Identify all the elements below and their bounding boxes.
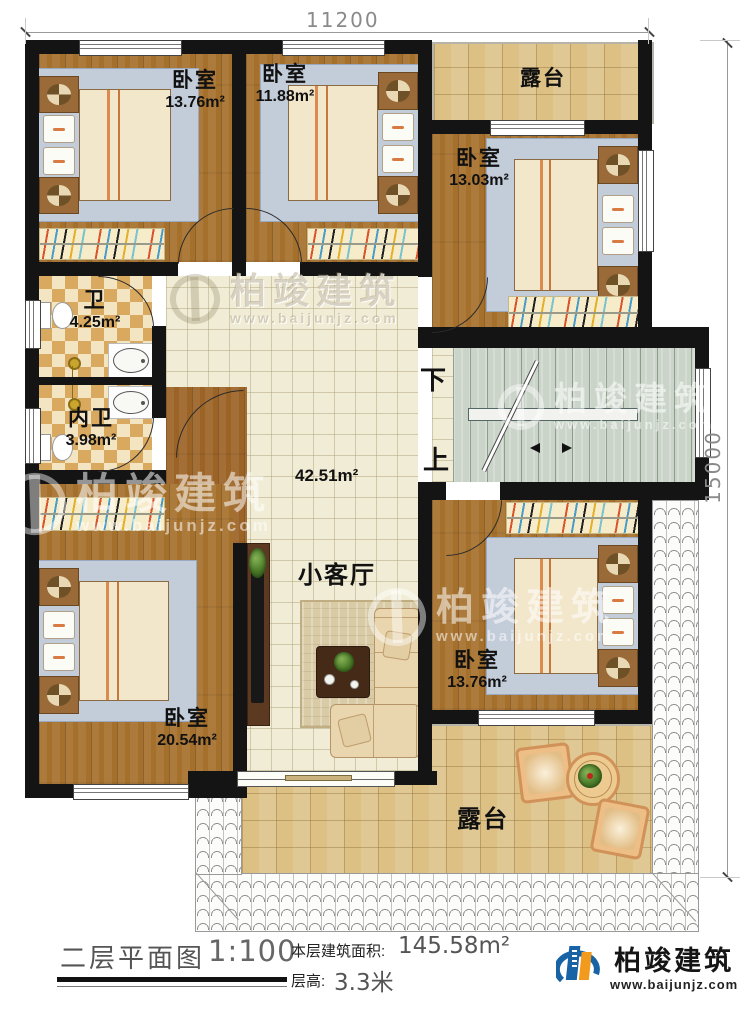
window (25, 300, 41, 349)
nightstand (39, 76, 79, 113)
wall-bedroom-r-right (638, 250, 652, 331)
dimension-height: 15000 (701, 430, 725, 504)
pillow (602, 195, 634, 223)
wall-bedroom-br-bottom (432, 710, 478, 724)
floor-plan: 下 上 (0, 0, 750, 1009)
wall-bath-right (152, 326, 166, 418)
wall-terrace-bedroom-r (432, 120, 490, 134)
nightstand (598, 649, 638, 687)
extension-line (700, 40, 740, 41)
company-name: 柏竣建筑 (614, 947, 734, 977)
floor-area-value: 145.58m² (398, 933, 510, 959)
wall-stairs-bottom (418, 482, 446, 500)
sliding-door (237, 771, 395, 787)
nightstand (378, 176, 418, 214)
floor-height-label: 层高: (291, 970, 325, 991)
roof-tiles-bottom (195, 873, 699, 932)
title-underline (57, 977, 287, 982)
room-label-living: 小客厅 (282, 562, 392, 591)
floor-height-value: 3.3米 (334, 963, 394, 997)
extension-line (648, 18, 649, 44)
room-label-terrace-bottom: 露台 (428, 806, 538, 835)
bed (514, 545, 638, 687)
roof-tiles-right (652, 500, 699, 932)
extension-line (700, 877, 740, 878)
nightstand (598, 545, 638, 583)
room-label-bedroom-top-middle: 卧室 11.88m² (230, 62, 340, 106)
sink (108, 343, 154, 378)
room-label-ensuite: 内卫 3.98m² (36, 406, 146, 450)
plan-title: 二层平面图 (60, 938, 205, 975)
plant (334, 652, 354, 672)
wall-topblock-bottom (300, 262, 432, 276)
room-label-bedroom-right: 卧室 13.03m² (424, 146, 534, 190)
roof-tiles-left (195, 787, 242, 875)
wardrobe (307, 228, 420, 260)
pillow (43, 611, 75, 639)
pillow (382, 145, 414, 173)
wall-bedroom-br-left (418, 500, 432, 785)
dimension-line-top (25, 32, 649, 33)
nightstand (39, 676, 79, 714)
window (478, 710, 595, 726)
plant (249, 548, 266, 578)
plan-scale: 1:100 (208, 934, 297, 968)
window (79, 40, 182, 56)
room-label-bedroom-bottom-right: 卧室 13.76m² (422, 648, 532, 692)
wall-bath-bottom (25, 470, 166, 484)
plant (578, 764, 602, 788)
wall-living-bottom (393, 771, 437, 785)
pillow (382, 113, 414, 141)
wall-stairs-bottom (500, 482, 709, 500)
window (638, 150, 654, 252)
nightstand (598, 146, 638, 184)
floor-drain (68, 357, 81, 370)
stair-arrow-left (530, 443, 540, 453)
wardrobe (506, 502, 640, 534)
room-label-terrace-top: 露台 (488, 66, 598, 91)
stair-handrail (468, 408, 638, 421)
nightstand (378, 72, 418, 110)
dimension-width: 11200 (306, 8, 380, 32)
wall-bedroom-r-right (638, 40, 652, 150)
wall-stairs-right (695, 348, 709, 368)
throw-pillow (382, 630, 413, 661)
window (282, 40, 385, 56)
stair-arrow-right (562, 443, 572, 453)
title-underline-thin (57, 986, 287, 987)
company-website: www.baijunjz.com (610, 977, 738, 992)
wall-living-bottom (188, 771, 237, 785)
wall-bedroom-bl-right (233, 543, 247, 798)
nightstand (39, 568, 79, 606)
wall-bedroom-br-right (638, 500, 652, 724)
window (73, 784, 189, 800)
wall-stairs-top (418, 327, 709, 348)
wardrobe (508, 296, 640, 330)
bed-mattress (79, 581, 169, 701)
pillow (43, 147, 75, 175)
pillow (602, 586, 634, 614)
pillow (43, 115, 75, 143)
plate (324, 674, 335, 685)
stairs-down-label: 下 (420, 360, 446, 397)
wardrobe (39, 497, 165, 531)
terrace-chair (589, 798, 650, 861)
pillow (602, 618, 634, 646)
window (490, 120, 585, 136)
dimension-line-right (727, 40, 728, 878)
company-logo-icon (556, 940, 602, 999)
wall-bath-right (152, 262, 166, 276)
room-label-hall-area: 42.51m² (295, 466, 358, 486)
wall-bedroom-bl-bottom (25, 784, 73, 798)
tv (251, 565, 264, 703)
extension-line (25, 18, 26, 44)
floor-area-label: 本层建筑面积: (291, 940, 385, 961)
wardrobe (39, 228, 165, 260)
plate (350, 680, 359, 689)
pillow (602, 227, 634, 255)
wall-bath-divider (25, 377, 152, 385)
bed-head (39, 76, 79, 214)
bed (39, 568, 169, 714)
nightstand (39, 177, 79, 214)
stairs-up-label: 上 (423, 440, 449, 477)
room-label-bedroom-bottom-left: 卧室 20.54m² (132, 706, 242, 750)
room-label-bathroom: 卫 4.25m² (40, 288, 150, 332)
pillow (43, 643, 75, 671)
company-logo: 柏竣建筑 www.baijunjz.com (556, 940, 738, 999)
wall-topblock-bottom (232, 262, 246, 276)
